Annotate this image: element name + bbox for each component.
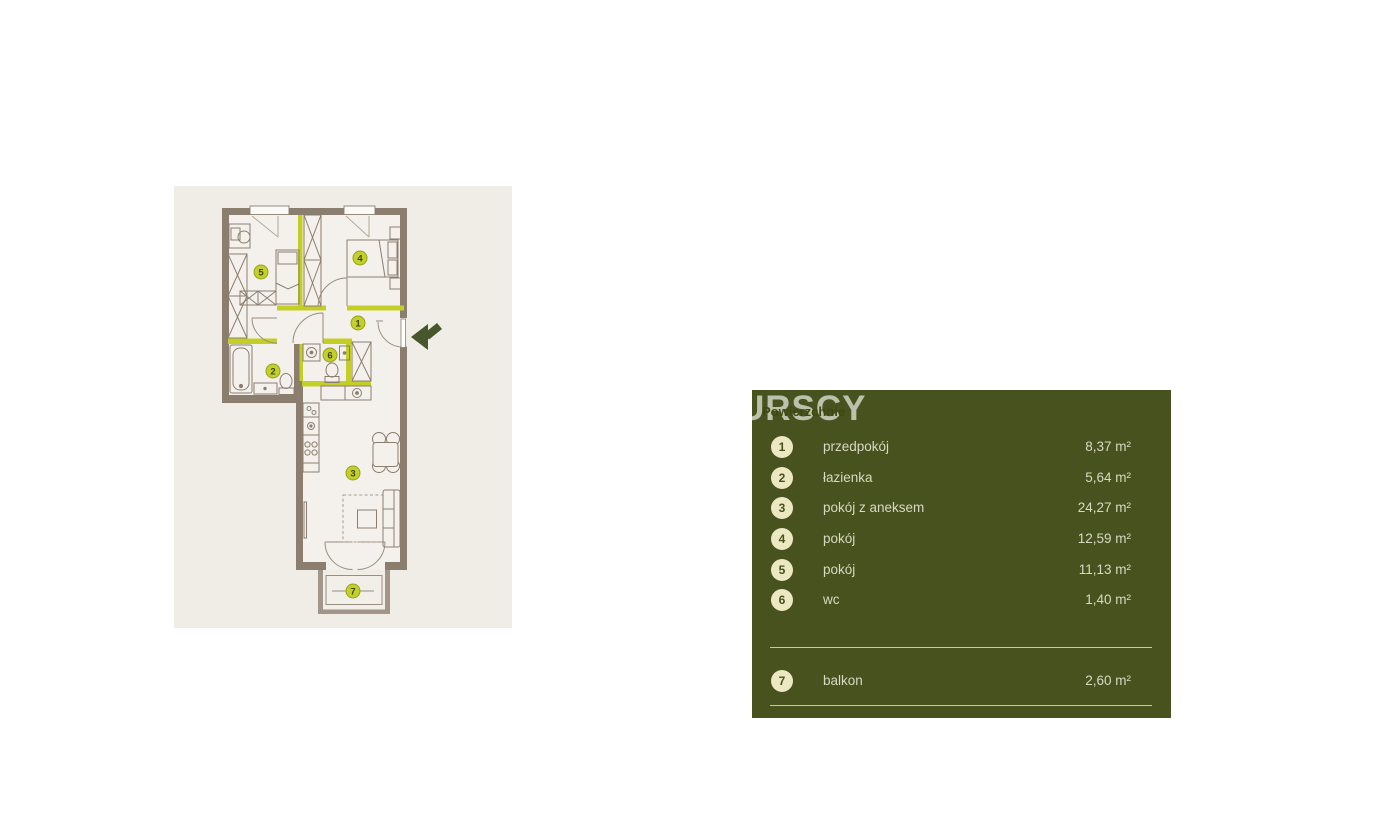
- svg-text:3: 3: [350, 468, 355, 479]
- plan-badge-3: 3: [346, 466, 360, 480]
- room-name: pokój z aneksem: [823, 497, 924, 519]
- room-number-badge: 7: [771, 670, 793, 692]
- room-area: 1,40 m²: [1085, 589, 1131, 611]
- plan-badge-1: 1: [351, 316, 365, 330]
- svg-text:1: 1: [355, 318, 361, 329]
- legend-row: 6 wc 1,40 m²: [752, 589, 1171, 611]
- legend-divider: [770, 705, 1152, 706]
- room-name: pokój: [823, 528, 855, 550]
- room-name: wc: [823, 589, 840, 611]
- entrance-door-leaf: [401, 319, 406, 348]
- svg-text:4: 4: [357, 253, 363, 264]
- room-name: łazienka: [823, 467, 873, 489]
- svg-text:7: 7: [350, 586, 355, 597]
- plan-badge-6: 6: [323, 348, 337, 362]
- svg-text:6: 6: [327, 350, 332, 361]
- legend-row: 7 balkon 2,60 m²: [752, 670, 1171, 692]
- room-name: pokój: [823, 559, 855, 581]
- plan-badge-2: 2: [266, 364, 280, 378]
- room-area: 24,27 m²: [1078, 497, 1131, 519]
- legend-row: 3 pokój z aneksem 24,27 m²: [752, 497, 1171, 519]
- plan-badge-5: 5: [254, 265, 268, 279]
- legend-panel: URSCY Powierzchnie 1 przedpokój 8,37 m² …: [752, 390, 1171, 718]
- room-area: 12,59 m²: [1078, 528, 1131, 550]
- room-number-badge: 3: [771, 497, 793, 519]
- room-name: balkon: [823, 670, 863, 692]
- room-area: 2,60 m²: [1085, 670, 1131, 692]
- legend-divider: [770, 647, 1152, 648]
- floor-plan-drawing: 1 2 3 4 5 6 7: [174, 186, 512, 628]
- room-number-badge: 4: [771, 528, 793, 550]
- room-area: 11,13 m²: [1079, 559, 1131, 581]
- entrance-arrow-icon: [411, 323, 442, 350]
- room-number-badge: 2: [771, 467, 793, 489]
- legend-row: 2 łazienka 5,64 m²: [752, 467, 1171, 489]
- legend-row: 5 pokój 11,13 m²: [752, 559, 1171, 581]
- room-area: 5,64 m²: [1085, 467, 1131, 489]
- legend-row: 4 pokój 12,59 m²: [752, 528, 1171, 550]
- room-name: przedpokój: [823, 436, 889, 458]
- room-number-badge: 5: [771, 559, 793, 581]
- svg-text:5: 5: [258, 267, 264, 278]
- svg-text:2: 2: [270, 366, 275, 377]
- plan-badge-4: 4: [353, 251, 367, 265]
- legend-row: 1 przedpokój 8,37 m²: [752, 436, 1171, 458]
- plan-badge-7: 7: [346, 584, 360, 598]
- page: { "legend": { "watermark": "URSCY", "tit…: [0, 0, 1379, 824]
- room-number-badge: 1: [771, 436, 793, 458]
- room-number-badge: 6: [771, 589, 793, 611]
- legend-title: Powierzchnie: [762, 404, 845, 419]
- floor-plan-area: 1 2 3 4 5 6 7: [174, 186, 512, 628]
- room-area: 8,37 m²: [1085, 436, 1131, 458]
